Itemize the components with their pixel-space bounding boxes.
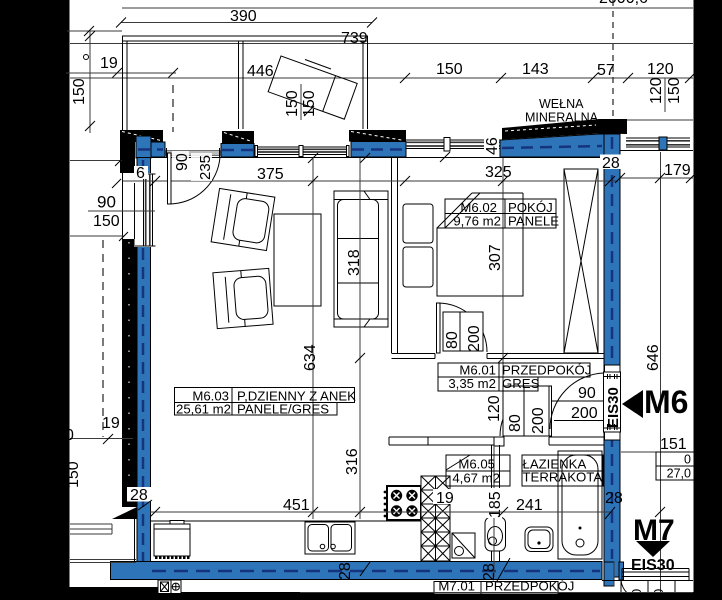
svg-text:200: 200 [571,405,598,422]
svg-text:46: 46 [484,137,501,155]
svg-text:PRZEDPOKÓJ: PRZEDPOKÓJ [485,579,574,594]
svg-text:200: 200 [530,407,547,434]
svg-text:27,0: 27,0 [667,467,691,481]
svg-text:25,61 m2: 25,61 m2 [176,402,231,417]
svg-text:200: 200 [466,325,483,352]
svg-text:235: 235 [197,155,214,180]
svg-text:179: 179 [664,162,691,179]
svg-text:PANELE/GRES: PANELE/GRES [237,402,329,417]
svg-text:150: 150 [436,61,463,78]
svg-text:80: 80 [507,414,524,432]
svg-text:151: 151 [660,436,687,453]
svg-text:90: 90 [578,385,596,402]
svg-text:143: 143 [522,61,549,78]
svg-text:325: 325 [485,164,512,181]
svg-text:19: 19 [436,490,454,507]
svg-text:PANELE: PANELE [508,214,559,229]
svg-text:446: 446 [247,63,274,80]
svg-text:80: 80 [444,331,461,349]
svg-text:28: 28 [602,155,620,172]
svg-text:6: 6 [136,165,145,182]
svg-text:241: 241 [516,497,543,514]
svg-text:90: 90 [97,193,116,212]
svg-text:M6.05: M6.05 [458,457,495,472]
svg-text:57: 57 [597,62,615,79]
svg-text:375: 375 [257,166,284,183]
svg-text:90: 90 [174,153,191,171]
svg-text:4,67 m2: 4,67 m2 [452,471,500,486]
svg-text:0: 0 [65,427,74,444]
svg-text:M6: M6 [644,384,688,420]
svg-text:TERRAKOTA: TERRAKOTA [523,470,603,485]
svg-text:120: 120 [647,61,674,78]
svg-text:WEŁNA: WEŁNA [539,97,584,111]
svg-text:3,35 m2: 3,35 m2 [448,376,496,391]
svg-text:EIS30: EIS30 [605,387,622,428]
svg-text:150: 150 [93,213,120,230]
svg-text:150: 150 [301,90,318,117]
svg-text:150: 150 [666,77,683,104]
svg-text:451: 451 [283,497,310,514]
svg-text:GRES: GRES [502,376,540,391]
svg-text:28: 28 [337,562,354,580]
svg-text:28: 28 [605,490,623,507]
svg-text:EIS30: EIS30 [631,557,675,574]
svg-text:150: 150 [65,461,82,488]
svg-text:19: 19 [100,55,118,72]
svg-text:0: 0 [684,453,691,467]
svg-text:316: 316 [344,448,361,475]
svg-text:390: 390 [230,8,257,25]
svg-text:9,76 m2: 9,76 m2 [453,214,501,229]
svg-text:634: 634 [302,344,319,371]
svg-text:120: 120 [486,395,503,422]
svg-text:120: 120 [648,77,665,104]
svg-text:646: 646 [645,344,662,371]
svg-text:19: 19 [102,415,120,432]
svg-text:739: 739 [341,30,368,47]
svg-text:150: 150 [71,78,88,105]
svg-text:150: 150 [284,90,301,117]
svg-text:307: 307 [487,244,504,271]
svg-text:2000,6: 2000,6 [599,0,648,7]
svg-text:28: 28 [130,487,148,504]
svg-text:M7.01: M7.01 [438,579,475,594]
